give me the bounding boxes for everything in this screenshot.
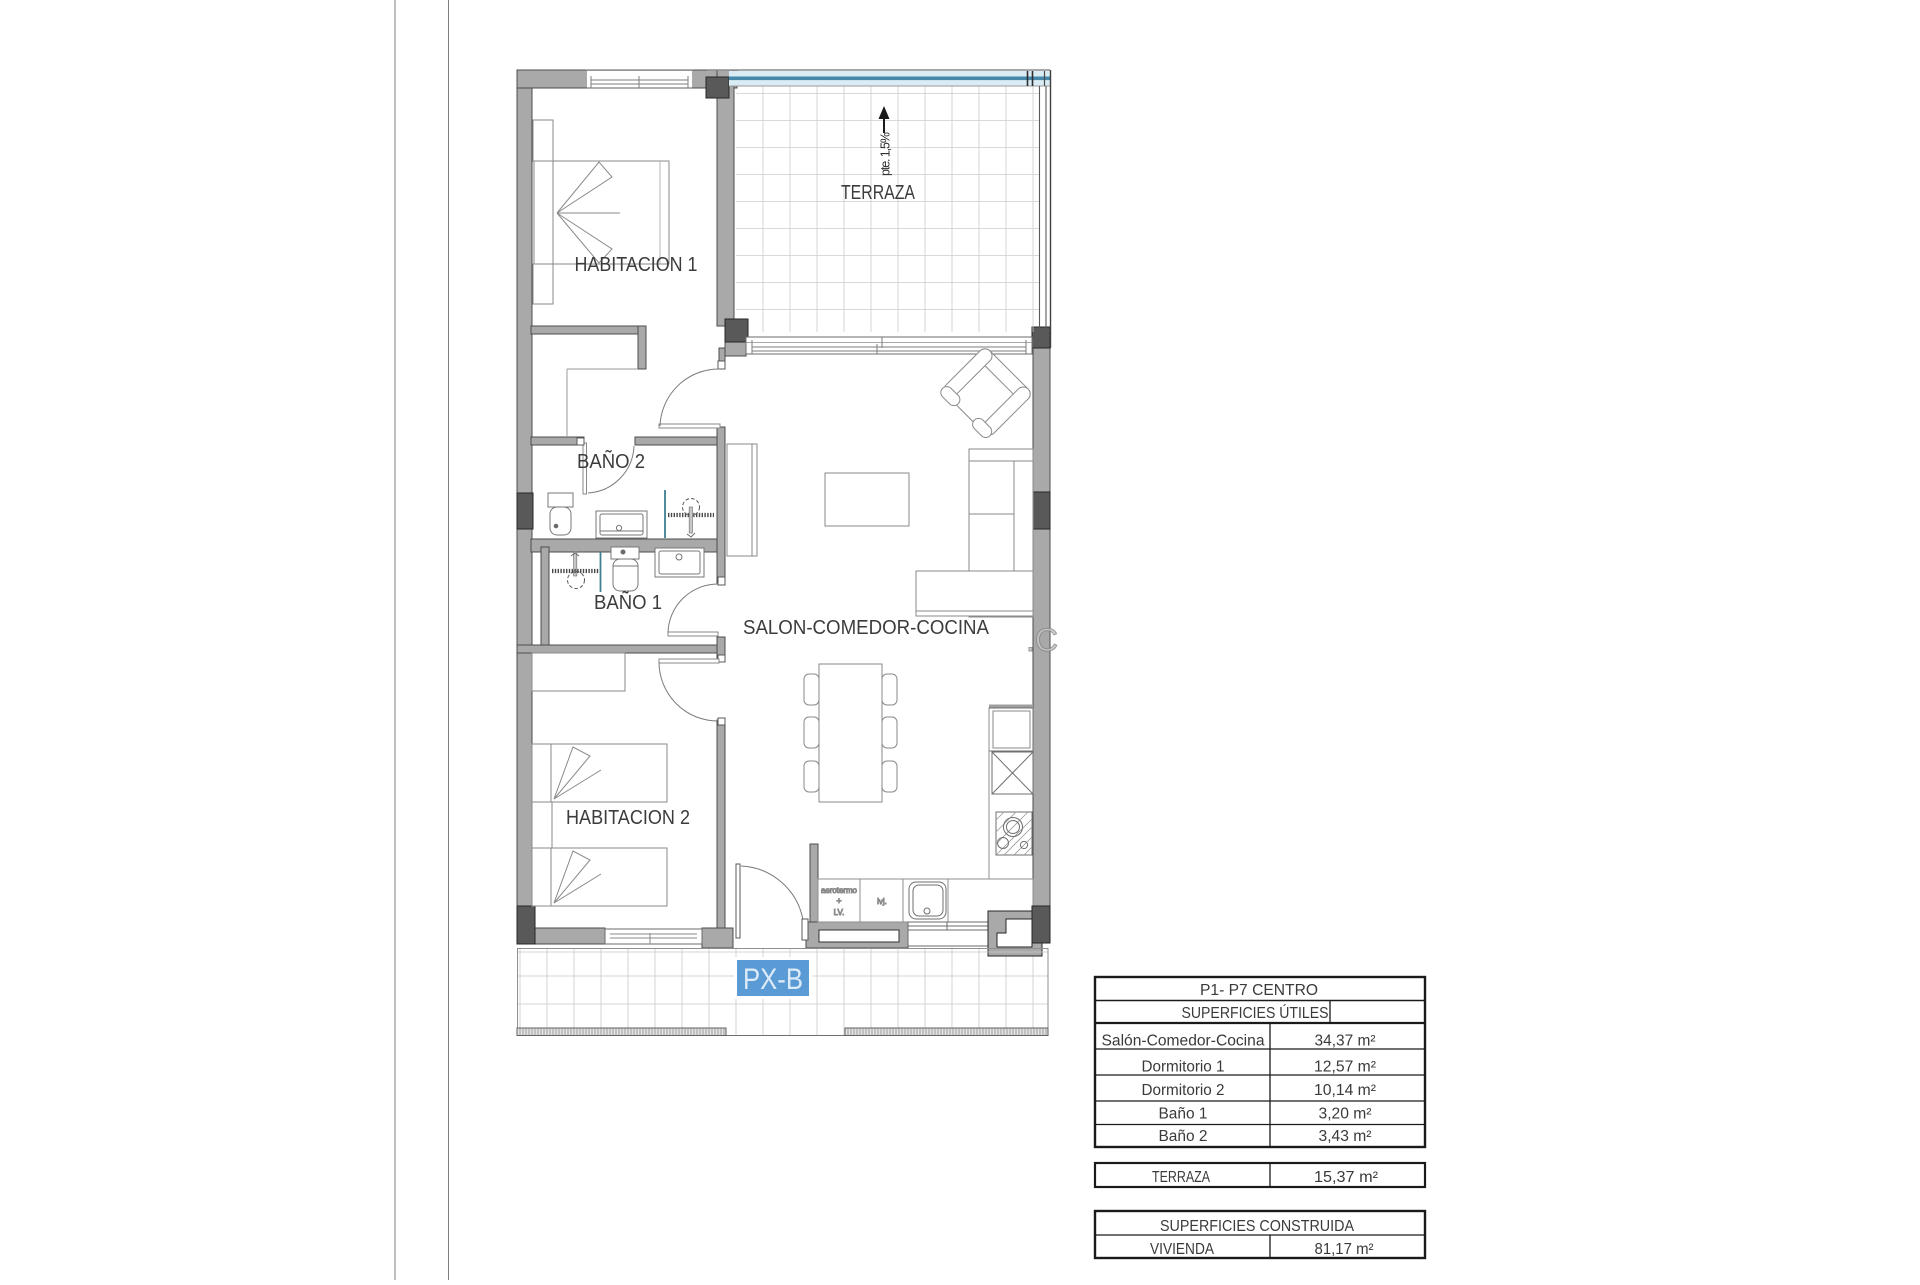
svg-text:BAÑO 1: BAÑO 1 [594, 590, 662, 614]
svg-text:+: + [836, 896, 841, 906]
svg-text:Baño 2: Baño 2 [1159, 1128, 1208, 1145]
svg-text:Dormitorio 2: Dormitorio 2 [1142, 1082, 1225, 1099]
svg-text:34,37 m²: 34,37 m² [1315, 1033, 1376, 1050]
svg-text:P1- P7 CENTRO: P1- P7 CENTRO [1200, 982, 1318, 999]
svg-text:HABITACION 1: HABITACION 1 [575, 254, 698, 276]
svg-text:TERRAZA: TERRAZA [841, 182, 916, 204]
svg-text:SUPERFICIES CONSTRUIDA: SUPERFICIES CONSTRUIDA [1160, 1218, 1354, 1235]
svg-text:3,20 m²: 3,20 m² [1319, 1106, 1372, 1123]
svg-text:PX-B: PX-B [743, 963, 803, 996]
svg-text:SUPERFICIES ÚTILES: SUPERFICIES ÚTILES [1182, 1003, 1329, 1022]
svg-text:15,37 m²: 15,37 m² [1314, 1169, 1378, 1186]
svg-text:LV.: LV. [834, 908, 845, 917]
svg-text:HABITACION 2: HABITACION 2 [566, 807, 690, 829]
svg-text:Baño 1: Baño 1 [1159, 1106, 1208, 1123]
svg-text:BAÑO 2: BAÑO 2 [577, 449, 645, 473]
svg-text:Salón-Comedor-Cocina: Salón-Comedor-Cocina [1102, 1033, 1265, 1050]
svg-text:SALON-COMEDOR-COCINA: SALON-COMEDOR-COCINA [743, 617, 990, 639]
svg-text:10,14 m²: 10,14 m² [1314, 1082, 1376, 1099]
svg-text:.C: .C [1026, 622, 1058, 658]
svg-text:pte. 1,5%: pte. 1,5% [879, 132, 893, 176]
svg-text:12,57 m²: 12,57 m² [1314, 1059, 1376, 1076]
svg-text:81,17 m²: 81,17 m² [1315, 1241, 1374, 1258]
svg-text:aerotermo: aerotermo [821, 886, 858, 895]
svg-text:Dormitorio 1: Dormitorio 1 [1142, 1059, 1225, 1076]
svg-text:lvj.: lvj. [877, 897, 887, 906]
svg-text:3,43 m²: 3,43 m² [1319, 1128, 1372, 1145]
svg-text:TERRAZA: TERRAZA [1152, 1169, 1211, 1186]
svg-text:VIVIENDA: VIVIENDA [1150, 1241, 1215, 1258]
